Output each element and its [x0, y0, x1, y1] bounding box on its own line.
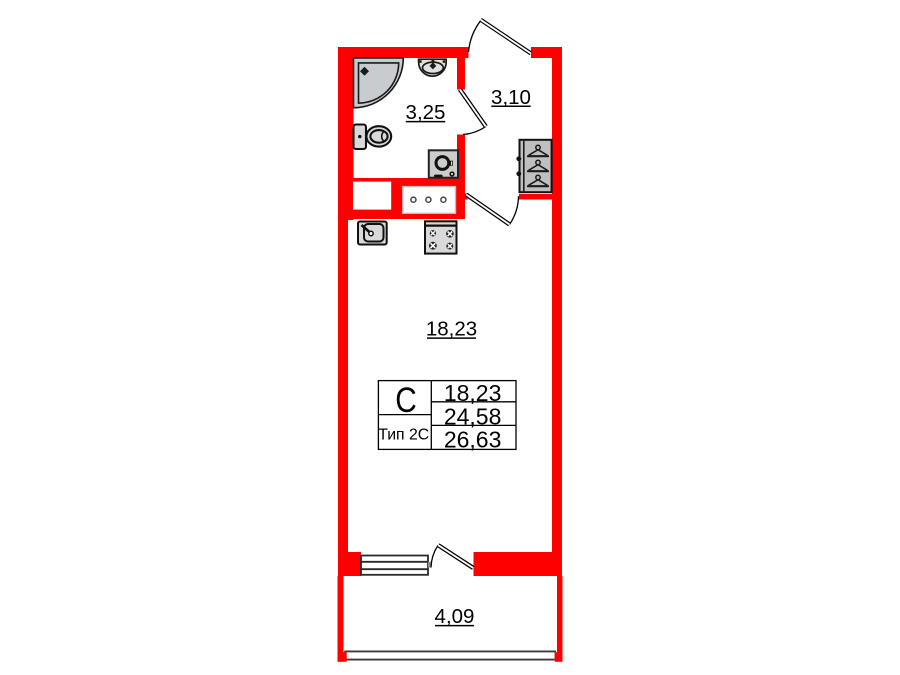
svg-text:3,25: 3,25 [406, 101, 446, 124]
svg-text:26,63: 26,63 [444, 427, 502, 453]
svg-text:С: С [395, 380, 417, 420]
svg-text:4,09: 4,09 [435, 605, 475, 628]
svg-text:18,23: 18,23 [426, 318, 477, 341]
svg-text:18,23: 18,23 [444, 380, 502, 406]
svg-text:Тип 2С: Тип 2С [378, 426, 429, 443]
